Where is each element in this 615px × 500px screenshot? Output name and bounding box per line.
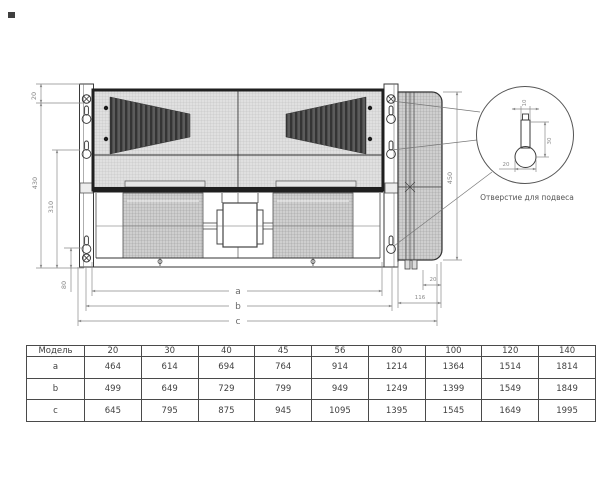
dimension-value-cell: 1214 (368, 357, 425, 379)
upper-casing (93, 90, 383, 193)
casing-bottom-bar (93, 187, 383, 193)
vent-slot (125, 181, 205, 187)
dimension-value-cell: 464 (85, 357, 142, 379)
screw-dot-icon (368, 137, 372, 141)
dimension-value-cell: 1995 (539, 400, 596, 422)
pipe-stub (412, 260, 417, 269)
dimension-value-cell: 1095 (312, 400, 369, 422)
unit-side-view (398, 92, 442, 269)
left-fan-housing (123, 193, 203, 258)
dimension-value-cell: 1395 (368, 400, 425, 422)
table-header-row: Модель203040455680100120140 (27, 346, 596, 357)
page: 20 430 310 80 a b c 20 (0, 0, 615, 500)
model-size-header-cell: 20 (85, 346, 142, 357)
dim-side-tab-offset: 20 (430, 277, 437, 283)
dimension-value-cell: 764 (255, 357, 312, 379)
dim-slot-height: 30 (547, 137, 553, 144)
dimension-value-cell: 1545 (425, 400, 482, 422)
dimension-value-cell: 949 (312, 378, 369, 400)
vent-slot (276, 181, 356, 187)
dim-span-a: a (235, 287, 241, 297)
dimension-value-cell: 1549 (482, 378, 539, 400)
detail-caption: Отверстие для подвеса (480, 193, 574, 202)
dim-slot-width: 10 (522, 99, 528, 106)
dim-hole-diameter: 20 (503, 162, 510, 168)
model-size-header-cell: 120 (482, 346, 539, 357)
dim-side-height: 450 (446, 172, 454, 184)
dimension-value-cell: 1849 (539, 378, 596, 400)
unit-front-view (80, 84, 443, 269)
right-mounting-bracket (384, 84, 398, 267)
dimension-value-cell: 914 (312, 357, 369, 379)
dimension-value-cell: 729 (198, 378, 255, 400)
table-row: b4996497297999491249139915491849 (27, 378, 596, 400)
corner-mark (8, 12, 15, 18)
dimension-value-cell: 499 (85, 378, 142, 400)
row-label-cell: a (27, 357, 85, 379)
dimension-value-cell: 1399 (425, 378, 482, 400)
dimension-value-cell: 795 (141, 400, 198, 422)
table-body: a4646146947649141214136415141814b4996497… (27, 357, 596, 422)
dimension-value-cell: 875 (198, 400, 255, 422)
dimension-value-cell: 649 (141, 378, 198, 400)
table-header: Модель203040455680100120140 (27, 346, 596, 357)
dimension-value-cell: 645 (85, 400, 142, 422)
model-size-header-cell: 30 (141, 346, 198, 357)
right-fan-housing (273, 193, 353, 258)
model-size-header-cell: 80 (368, 346, 425, 357)
row-label-cell: c (27, 400, 85, 422)
dimension-value-cell: 799 (255, 378, 312, 400)
dimension-value-cell: 1649 (482, 400, 539, 422)
table-row: a4646146947649141214136415141814 (27, 357, 596, 379)
model-size-header-cell: 45 (255, 346, 312, 357)
pipe-stub (405, 260, 410, 269)
dimension-value-cell: 694 (198, 357, 255, 379)
row-label-cell: b (27, 378, 85, 400)
dimension-value-cell: 945 (255, 400, 312, 422)
model-size-header-cell: 140 (539, 346, 596, 357)
dim-span-c: c (236, 317, 241, 327)
dimension-value-cell: 1814 (539, 357, 596, 379)
screw-dot-icon (368, 106, 372, 110)
dim-top-offset: 20 (30, 92, 38, 100)
technical-drawing: 20 430 310 80 a b c 20 (0, 0, 615, 345)
dimensions-table: Модель203040455680100120140 a46461469476… (26, 345, 596, 422)
left-mounting-bracket (80, 84, 94, 267)
dim-side-depth: 116 (415, 295, 426, 301)
screw-dot-icon (104, 137, 108, 141)
dimension-value-cell: 614 (141, 357, 198, 379)
table-row: c64579587594510951395154516491995 (27, 400, 596, 422)
dim-bottom-offset: 80 (60, 281, 68, 289)
dim-span-b: b (235, 302, 241, 312)
dimension-value-cell: 1249 (368, 378, 425, 400)
model-size-header-cell: 40 (198, 346, 255, 357)
dimension-value-cell: 1514 (482, 357, 539, 379)
model-size-header-cell: 100 (425, 346, 482, 357)
fan-section (84, 193, 395, 267)
dim-height-total: 430 (31, 177, 39, 189)
dim-height-inner: 310 (47, 201, 55, 213)
model-size-header-cell: 56 (312, 346, 369, 357)
model-header-cell: Модель (27, 346, 85, 357)
dimension-value-cell: 1364 (425, 357, 482, 379)
screw-dot-icon (104, 106, 108, 110)
